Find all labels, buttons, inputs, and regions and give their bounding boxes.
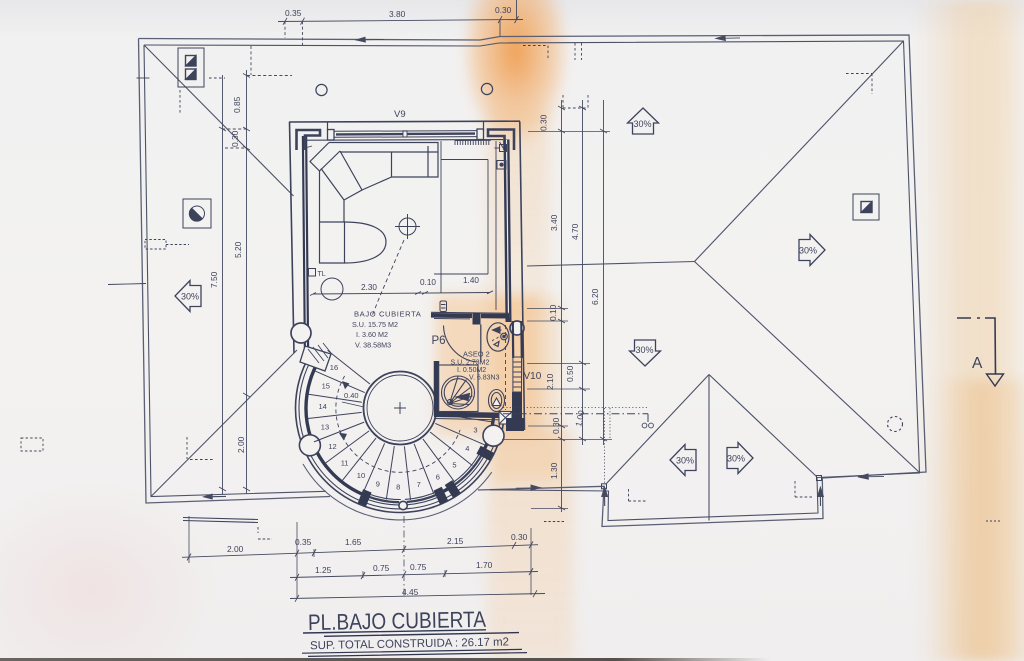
svg-text:13: 13 (321, 423, 329, 432)
svg-text:3.40: 3.40 (549, 214, 559, 231)
svg-text:6.20: 6.20 (590, 288, 600, 305)
svg-text:4: 4 (465, 444, 469, 453)
svg-text:7.50: 7.50 (209, 271, 219, 288)
svg-text:S.U. 2.73M2: S.U. 2.73M2 (451, 360, 490, 367)
svg-text:16: 16 (330, 363, 338, 372)
svg-text:A: A (972, 355, 983, 372)
svg-text:30%: 30% (676, 456, 694, 466)
svg-text:ASEO 2: ASEO 2 (463, 350, 490, 359)
svg-text:0.10: 0.10 (548, 304, 558, 321)
svg-text:4.70: 4.70 (570, 223, 580, 240)
svg-text:0.40: 0.40 (344, 391, 359, 400)
svg-text:V. 38.58M3: V. 38.58M3 (355, 341, 391, 350)
svg-text:V10: V10 (524, 371, 542, 382)
svg-text:3.80: 3.80 (389, 9, 406, 19)
svg-text:0.10: 0.10 (420, 278, 436, 287)
svg-text:2.30: 2.30 (361, 283, 377, 292)
svg-text:15: 15 (322, 382, 330, 391)
svg-text:12: 12 (328, 442, 336, 451)
svg-text:3: 3 (473, 425, 477, 434)
svg-text:1.30: 1.30 (549, 462, 559, 479)
svg-text:TL: TL (318, 271, 326, 278)
svg-text:0.75: 0.75 (373, 563, 390, 573)
svg-text:0.35: 0.35 (295, 537, 312, 547)
svg-text:1.25: 1.25 (315, 565, 332, 575)
svg-text:30%: 30% (799, 246, 817, 256)
svg-text:2.00: 2.00 (227, 544, 244, 554)
svg-text:11: 11 (341, 458, 349, 467)
svg-text:5.20: 5.20 (233, 241, 243, 258)
svg-text:2.10: 2.10 (545, 373, 555, 390)
svg-text:I. 0.50M2: I. 0.50M2 (457, 367, 486, 374)
svg-text:I. 3.60 M2: I. 3.60 M2 (356, 330, 388, 339)
svg-text:0.30: 0.30 (230, 130, 240, 147)
svg-text:BAJO CUBIERTA: BAJO CUBIERTA (354, 310, 422, 319)
svg-text:30%: 30% (181, 292, 199, 302)
svg-text:2.00: 2.00 (236, 436, 246, 453)
svg-text:0.50: 0.50 (565, 365, 575, 382)
svg-text:0.30: 0.30 (539, 114, 549, 131)
svg-text:0.30: 0.30 (495, 5, 512, 15)
svg-text:V9: V9 (394, 109, 406, 120)
svg-text:30%: 30% (636, 345, 654, 355)
svg-text:1.70: 1.70 (476, 560, 493, 570)
svg-text:6: 6 (436, 473, 440, 482)
svg-text:0.85: 0.85 (232, 96, 242, 113)
svg-text:8: 8 (396, 483, 400, 492)
svg-text:V. 6.83N3: V. 6.83N3 (469, 375, 500, 382)
svg-text:1.65: 1.65 (345, 537, 362, 547)
svg-text:30%: 30% (727, 454, 745, 464)
svg-text:0.35: 0.35 (285, 8, 302, 18)
svg-text:0.75: 0.75 (410, 562, 427, 572)
svg-text:S.U. 15.75 M2: S.U. 15.75 M2 (352, 320, 398, 329)
svg-text:14: 14 (319, 402, 327, 411)
svg-text:30%: 30% (634, 119, 652, 129)
svg-text:4.45: 4.45 (402, 587, 419, 597)
svg-text:10: 10 (357, 471, 365, 480)
svg-text:7: 7 (417, 480, 421, 489)
svg-text:P6: P6 (432, 335, 446, 347)
svg-text:1.00: 1.00 (573, 409, 586, 427)
svg-text:5: 5 (452, 460, 456, 469)
svg-text:1.40: 1.40 (463, 276, 479, 285)
svg-text:9: 9 (376, 479, 380, 488)
svg-text:2.15: 2.15 (447, 536, 464, 546)
svg-text:0.30: 0.30 (511, 532, 528, 542)
